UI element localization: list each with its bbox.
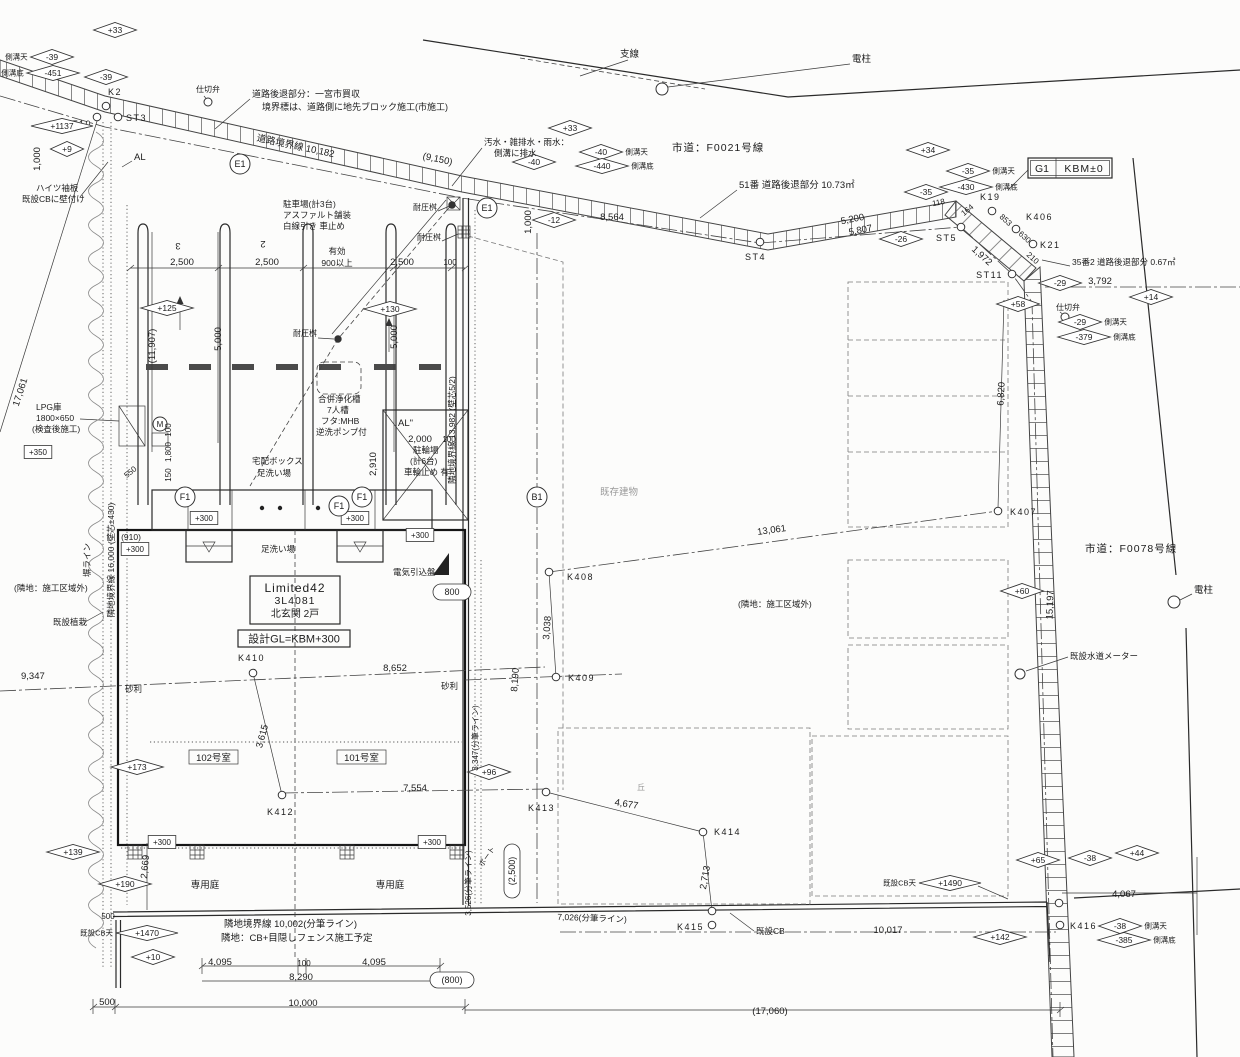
note-text: 3 [175, 240, 180, 251]
room-102: 102号室 [196, 752, 231, 764]
note-text: 逆洗ポンプ付 [316, 427, 367, 437]
dimension-text: 4,067 [1112, 889, 1136, 900]
level-value: +142 [990, 932, 1009, 942]
level-value: +96 [482, 767, 497, 777]
survey-point-label: K414 [714, 827, 741, 837]
level-value: +1490 [938, 878, 962, 888]
dimension-text: 4,095 [362, 957, 386, 968]
dimension-text: (17,060) [752, 1006, 787, 1017]
level-diamond: +125 [141, 301, 193, 316]
site-structures [119, 197, 470, 575]
level-value: -451 [44, 68, 61, 78]
note-text: 汚水・雑排水・雨水： [484, 137, 569, 147]
level-box: +350 [24, 446, 52, 459]
level-label: 既設CB天 [80, 928, 113, 938]
level-value: +14 [1144, 292, 1159, 302]
level-value: -385 [1115, 935, 1132, 945]
level-box: +300 [406, 529, 434, 542]
dimension-text: (9,150) [422, 151, 454, 168]
level-value: +1137 [50, 121, 74, 131]
dimension-text: 15,197 [1044, 590, 1056, 619]
level-diamond: -430側溝底 [940, 180, 1018, 195]
level-diamond: +139 [47, 845, 99, 860]
note-text: 隣地境界線 13,982 (壁芯5/2) [447, 376, 457, 484]
dimension-text: 5,000 [389, 325, 400, 349]
level-value: +44 [1130, 848, 1145, 858]
note-text: 車輪止め 有 [404, 467, 449, 477]
dimension-text: 2,669 [139, 854, 152, 879]
building-outline [118, 530, 465, 845]
note-text: 境界標は、道路側に地先ブロック施工(市施工) [262, 101, 448, 112]
dimension-text: 17,061 [11, 377, 30, 408]
dimension-text: (11,907) [147, 329, 158, 364]
level-value: -29 [1074, 317, 1087, 327]
survey-point-label: K410 [238, 653, 265, 663]
dimension-text: 2,713 [698, 865, 713, 890]
level-value: -39 [100, 72, 113, 82]
level-diamond: -38側溝天 [1099, 919, 1168, 934]
level-label: 側溝天 [992, 166, 1015, 176]
dimension-text: 7,554 [403, 783, 427, 794]
design-gl: 設計GL=KBM+300 [248, 632, 340, 646]
note-text: 足洗い場 [257, 468, 292, 478]
note-text: 足洗い場 [261, 544, 296, 554]
dimension-text: 10,000 [288, 998, 317, 1009]
garden-label: 専用庭 [376, 879, 405, 891]
note-text: (検査後施工) [32, 424, 80, 434]
note-text: 有効 [328, 246, 345, 256]
dimension-text: 8,190 [509, 668, 522, 692]
survey-point-K414: K414 [699, 827, 741, 837]
survey-point-label: ST3 [126, 113, 147, 123]
note-text: 白線引き 車止め [283, 221, 345, 231]
site-plan-page: K2T10ST3ST4ST5ST11K19K406K21K407K408K409… [0, 0, 1240, 1057]
survey-point-label: K2 [108, 87, 122, 97]
planting-wavy-line [89, 132, 104, 948]
level-diamond: -38 [1069, 851, 1112, 866]
survey-point-ST5: ST5 [936, 223, 965, 243]
level-diamond: -39側溝天 [5, 50, 73, 65]
level-label: 側溝天 [5, 52, 28, 62]
note-text: 隣地：CB+目隠しフェンス施工予定 [221, 932, 373, 944]
garden-label: 専用庭 [191, 879, 220, 891]
note-text: 1800×650 [36, 413, 74, 423]
note-text: 耐圧桝 [293, 328, 317, 338]
dimension-text: 100 [443, 258, 457, 267]
level-diamond: -26 [880, 232, 923, 247]
note-text: 駐輪場 [413, 445, 439, 455]
grid-mark-label: F1 [334, 501, 345, 511]
grid-mark-label: B1 [531, 492, 542, 502]
dimension-text: 4,095 [208, 957, 232, 968]
site-plan-drawing: K2T10ST3ST4ST5ST11K19K406K21K407K408K409… [0, 0, 1240, 1057]
level-value: -12 [548, 215, 561, 225]
pit-icon [449, 202, 455, 208]
level-label: 側溝天 [1144, 921, 1167, 931]
level-diamond: -29 [1039, 276, 1082, 291]
level-value: +130 [380, 304, 399, 314]
note-text: 電気引込盤 [393, 567, 436, 577]
level-value: +9 [62, 144, 72, 154]
level-value: -430 [957, 182, 974, 192]
dimension-text: 8,290 [289, 972, 313, 983]
note-text: 仕切弁 [1056, 302, 1080, 312]
survey-point-label: K21 [1040, 240, 1061, 250]
note-text: AL" [398, 418, 413, 429]
survey-point-K412: K412 [267, 791, 294, 817]
level-diamond: +34 [907, 143, 950, 158]
survey-point-label: K416 [1070, 921, 1097, 931]
level-label: 側溝天 [625, 147, 648, 157]
dimension-text: 10,017 [873, 925, 902, 936]
level-value: -379 [1075, 332, 1092, 342]
garden-grates [128, 845, 464, 859]
survey-point-K415: K415 [677, 921, 716, 932]
level-box-value: +300 [411, 531, 430, 540]
point-icon [1055, 899, 1063, 907]
point-icon [708, 907, 716, 915]
dimension-text: 6,820 [995, 382, 1007, 406]
valve-icon [204, 98, 212, 106]
note-text: 砂利 [441, 681, 458, 691]
survey-point-label: ST4 [745, 252, 766, 262]
note-text: (910) [121, 532, 141, 542]
level-diamond: -35側溝天 [947, 164, 1016, 179]
level-box-value: +350 [29, 448, 48, 457]
level-diamond: +1490既設CB天 [883, 876, 981, 891]
dimension-text: 2,500 [255, 257, 279, 268]
grid-mark-label: F1 [180, 492, 191, 502]
level-value: +33 [563, 123, 578, 133]
dimension-text: 500 [99, 997, 115, 1008]
dimension-text: 2,500 [170, 257, 194, 268]
note-text: 道路境界線 10,182 [256, 132, 336, 160]
room-labels: 102号室 101号室 専用庭 専用庭 [189, 750, 405, 891]
level-label: 側溝底 [1113, 332, 1136, 342]
level-diamond: +1470既設CB天 [80, 926, 178, 941]
dimension-text: 7,026(分筆ライン) [557, 912, 627, 924]
level-box-value: +300 [126, 545, 145, 554]
level-value: -35 [920, 187, 933, 197]
level-diamond: -12 [533, 213, 576, 228]
survey-point-label: K412 [267, 807, 294, 817]
level-value: +33 [108, 25, 123, 35]
level-value: -29 [1054, 278, 1067, 288]
level-value: -38 [1084, 853, 1097, 863]
survey-point-K413: K413 [528, 788, 555, 813]
road-name-north: 市道：F0021号線 [672, 141, 764, 154]
note-text: 側溝に排水 [494, 148, 537, 158]
entrance-type: 北玄関 2戸 [271, 607, 319, 620]
survey-point-K410: K410 [238, 653, 265, 677]
level-diamond: +33 [94, 23, 137, 38]
benchmark-box: G1 KBM±0 [1028, 158, 1112, 178]
dimension-text: 8,652 [383, 663, 407, 674]
survey-point-label: K406 [1026, 212, 1053, 222]
survey-point-K21: K21 [1029, 240, 1060, 250]
dimension-text: 13,061 [756, 523, 786, 538]
survey-point-ST3: ST3 [114, 113, 147, 123]
note-text: 合併浄化槽 [318, 394, 361, 404]
level-box-value: +300 [195, 514, 214, 523]
level-label: 側溝底 [1, 68, 24, 78]
level-box: +300 [190, 512, 218, 525]
oval-dim: (800) [430, 972, 474, 988]
level-value: -440 [593, 161, 610, 171]
survey-point-label: K407 [1010, 507, 1037, 517]
survey-point-K408: K408 [545, 568, 594, 582]
note-text: 既設植栽 [53, 617, 88, 627]
dimension-text: 3,615 [254, 723, 271, 749]
product-name: Limited42 [264, 581, 325, 595]
dimension-text: 150 [164, 468, 173, 482]
dimension-text: 100 [297, 959, 311, 968]
room-101: 101号室 [344, 752, 379, 764]
level-value: +58 [1011, 299, 1026, 309]
dimension-text: 2,910 [368, 452, 379, 476]
note-text: 2 [260, 238, 265, 249]
dimension-text: 2,500 [390, 257, 414, 268]
utility-pole-icon [1168, 596, 1180, 608]
survey-point-K406: K406 [1012, 212, 1053, 233]
grid-mark-label: E1 [234, 159, 245, 169]
oval-dim: (2,500) [504, 844, 520, 898]
note-text: 既存建物 [600, 486, 639, 498]
note-text: AL [134, 152, 146, 163]
survey-point-label: K409 [568, 673, 595, 683]
building [118, 490, 465, 958]
grid-mark-E1: E1 [477, 198, 497, 218]
dimension-text: 100 [164, 423, 173, 437]
level-value: -39 [46, 52, 59, 62]
level-diamond: -385側溝底 [1098, 933, 1176, 948]
note-text: 900以上 [321, 258, 353, 268]
note-text: 隣地境界線 10,002(分筆ライン) [224, 918, 357, 930]
note-text: (隣地：施工区域外) [14, 583, 88, 593]
note-text: 宅配ボックス [252, 456, 303, 466]
dimension-text: 100 [442, 435, 456, 444]
level-diamond: -40側溝天 [580, 145, 649, 160]
dimension-text: 500 [101, 912, 115, 921]
level-value: -40 [595, 147, 608, 157]
note-text: 支線 [620, 48, 640, 60]
level-value: +139 [63, 847, 82, 857]
note-text: 塀ライン [82, 543, 92, 577]
level-label: 側溝底 [631, 161, 654, 171]
level-box: +300 [148, 836, 176, 849]
dimension-text: 1,000 [32, 147, 43, 171]
dimension-text: 3,792 [1088, 276, 1112, 287]
level-value: +34 [921, 145, 936, 155]
model-code: 3L4081 [274, 595, 315, 607]
oval-dim-value: 800 [444, 587, 459, 597]
pit-icon [335, 336, 341, 342]
level-value: -26 [895, 234, 908, 244]
note-text: アスファルト舗装 [283, 210, 352, 220]
benchmark-kbm: KBM±0 [1064, 163, 1103, 175]
level-value: +125 [157, 303, 176, 313]
dimension-text: 1,800 [164, 441, 173, 462]
note-text: 道路後退部分：一宮市買収 [252, 88, 360, 99]
survey-point-label: K413 [528, 803, 555, 813]
note-text: 7人槽 [327, 405, 349, 415]
note-text: (計6台) [410, 456, 438, 466]
dimension-text: 5,000 [213, 327, 224, 351]
title-block: Limited42 3L4081 北玄関 2戸 設計GL=KBM+300 [238, 576, 350, 647]
level-box-value: +300 [423, 838, 442, 847]
note-text: 耐圧桝 [413, 202, 437, 212]
survey-point-ST11: ST11 [976, 270, 1016, 280]
note-text: 既設水道メーター [1070, 651, 1138, 661]
road-name-east: 市道：F0078号線 [1085, 542, 1177, 555]
note-text: 耐圧桝 [417, 232, 441, 242]
note-text: 仕切弁 [196, 84, 220, 94]
level-diamond: +130 [364, 302, 416, 317]
level-diamond: +9 [50, 142, 83, 157]
grid-mark-E1: E1 [230, 154, 250, 174]
note-text: 35番2 道路後退部分 0.67㎡ [1072, 257, 1176, 267]
grid-mark-label: E1 [481, 203, 492, 213]
note-text: ハイツ袖板 [36, 183, 79, 193]
note-text: 既設CB [756, 926, 785, 936]
grid-mark-F1: F1 [175, 487, 195, 507]
level-label: 側溝底 [1153, 935, 1176, 945]
note-text: 砂利 [125, 684, 142, 694]
level-diamond: -39 [85, 70, 128, 85]
level-value: -38 [1114, 921, 1127, 931]
note-text: LPG庫 [36, 402, 62, 412]
level-box-value: +300 [153, 838, 172, 847]
survey-point-label: K408 [567, 572, 594, 582]
grid-mark-label: M [157, 420, 164, 429]
note-text: 550 [122, 464, 138, 480]
level-label: 側溝底 [995, 182, 1018, 192]
note-text: 駐車場(計3台) [283, 199, 336, 209]
level-label: 既設CB天 [883, 878, 916, 888]
level-diamond: +14 [1130, 290, 1173, 305]
note-text: フタ:MHB [321, 416, 360, 426]
grid-mark-F1: F1 [329, 496, 349, 516]
survey-point-label: K415 [677, 922, 704, 932]
dimension-text: 9,347 [21, 671, 45, 682]
note-text: (隣地：施工区域外) [738, 599, 812, 609]
dimension-text: 2,000 [408, 434, 432, 445]
level-diamond: +44 [1116, 846, 1159, 861]
level-value: +65 [1031, 855, 1046, 865]
survey-point-K19: K19 [980, 192, 1001, 215]
dimension-text: 4,677 [614, 797, 639, 812]
dimension-text: 3,347(分筆ライン) [470, 705, 480, 771]
note-text: 51番 道路後退部分 10.73㎡ [739, 179, 855, 191]
oval-dim-value: (800) [441, 975, 462, 985]
note-text: 丘 [637, 783, 645, 792]
level-box: +300 [121, 543, 149, 556]
dimension-text: 8,564 [600, 212, 624, 223]
dimension-text: 1,000 [523, 210, 534, 234]
survey-point-label: ST11 [976, 270, 1003, 280]
survey-point-K407: K407 [994, 507, 1037, 517]
level-value: +1470 [135, 928, 159, 938]
dimension-text: 3,038 [541, 616, 554, 640]
level-box-value: +300 [346, 514, 365, 523]
grid-mark-F1: F1 [352, 487, 372, 507]
survey-point-K409: K409 [552, 673, 595, 683]
survey-point-label: ST5 [936, 233, 957, 243]
grid-mark-B1: B1 [527, 487, 547, 507]
note-text: ポート [477, 845, 497, 869]
benchmark-g1: G1 [1035, 163, 1049, 175]
utility-pole-icon [656, 83, 668, 95]
level-diamond: +33 [549, 121, 592, 136]
level-value: -35 [962, 166, 975, 176]
oval-dim-value: (2,500) [507, 857, 517, 886]
level-label: 側溝天 [1104, 317, 1127, 327]
level-diamond: +10 [132, 950, 175, 965]
dimension-text: 3,526(分筆ライン) [463, 850, 473, 916]
level-value: +60 [1015, 586, 1030, 596]
level-diamond: -379側溝底 [1058, 330, 1136, 345]
note-text: 既設CBに壁付け [22, 194, 85, 204]
level-value: +173 [127, 762, 146, 772]
level-value: -40 [528, 157, 541, 167]
survey-point-label: K19 [980, 192, 1001, 202]
level-value: +10 [146, 952, 161, 962]
dimension-text: 853 [998, 212, 1014, 228]
level-diamond: -440側溝底 [576, 159, 654, 174]
oval-dim: 800 [433, 584, 471, 600]
grid-mark-label: F1 [357, 492, 368, 502]
note-text: 電柱 [1194, 584, 1214, 596]
water-meter-icon [1015, 669, 1025, 679]
note-text: 電柱 [852, 53, 872, 65]
level-value: +190 [115, 879, 134, 889]
level-box: +300 [418, 836, 446, 849]
note-text: 隣地境界線 16,000 (壁芯±430) [106, 502, 116, 617]
